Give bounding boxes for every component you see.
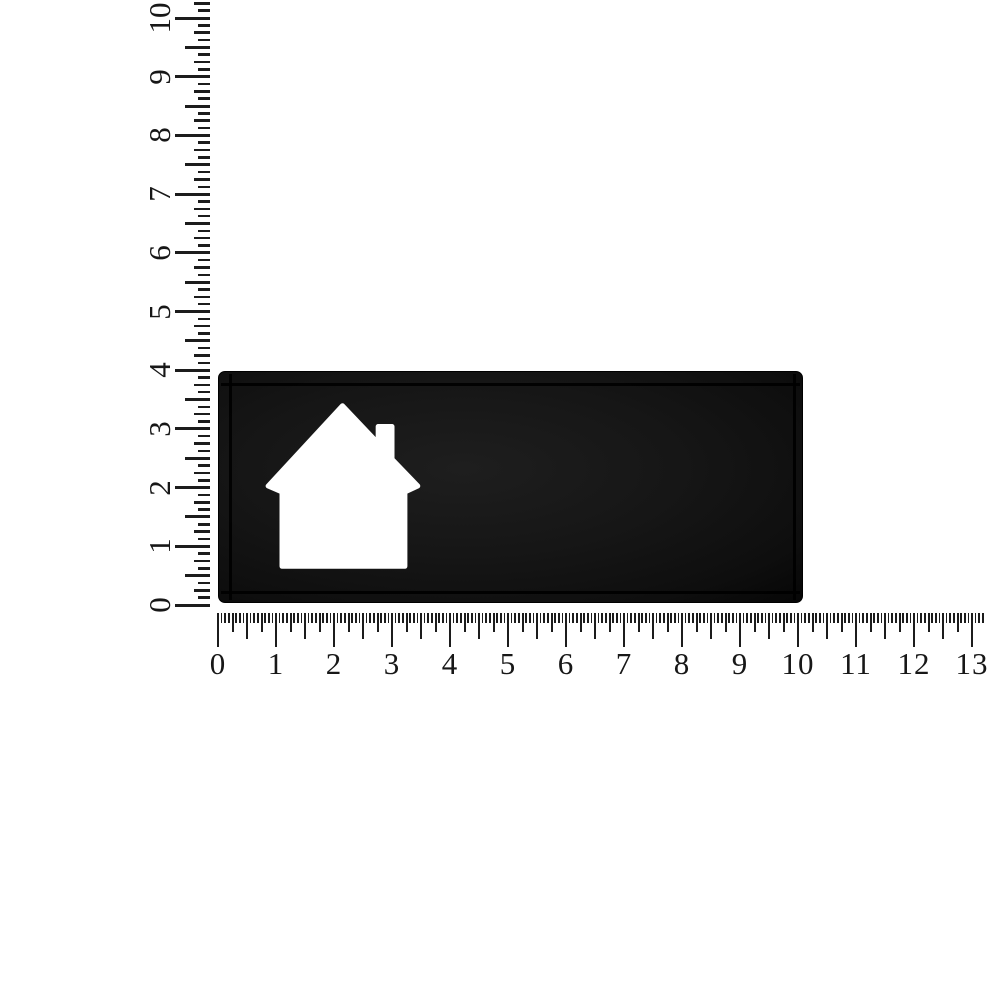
- v-ruler-tick: [194, 266, 210, 269]
- house-cutout-shape: [268, 406, 418, 567]
- h-ruler-tick: [543, 613, 545, 623]
- v-ruler-tick: [185, 105, 210, 108]
- v-ruler-tick: [198, 53, 210, 56]
- h-ruler-tick: [467, 613, 469, 623]
- v-ruler-tick: [198, 538, 210, 541]
- h-ruler-tick: [442, 613, 444, 623]
- h-ruler-tick: [337, 613, 339, 623]
- h-ruler-tick: [311, 613, 313, 623]
- v-ruler-tick: [175, 17, 210, 20]
- v-ruler-tick: [198, 230, 210, 233]
- v-ruler-label: 6: [136, 230, 182, 276]
- h-ruler-tick: [598, 613, 600, 623]
- h-ruler-tick: [830, 613, 832, 623]
- h-ruler-tick: [837, 613, 839, 623]
- v-ruler-tick: [198, 156, 210, 159]
- h-ruler-tick: [866, 613, 868, 623]
- h-ruler-tick: [243, 613, 245, 623]
- h-ruler-tick: [511, 613, 513, 623]
- h-ruler-tick: [942, 613, 944, 639]
- h-ruler-tick: [529, 613, 531, 623]
- v-ruler-tick: [194, 90, 210, 93]
- h-ruler-tick: [518, 613, 520, 623]
- v-ruler-tick: [198, 288, 210, 291]
- h-ruler-label: 6: [531, 648, 601, 679]
- v-ruler-tick: [185, 398, 210, 401]
- v-ruler-tick: [198, 200, 210, 203]
- h-ruler-tick: [344, 613, 346, 623]
- v-ruler-label: 10: [136, 0, 182, 41]
- h-ruler-tick: [768, 613, 770, 639]
- h-ruler-tick: [326, 613, 328, 623]
- h-ruler-tick: [913, 613, 916, 647]
- h-ruler-tick: [460, 613, 462, 623]
- h-ruler-tick: [623, 613, 626, 647]
- h-ruler-tick: [779, 613, 781, 623]
- v-ruler-tick: [194, 472, 210, 475]
- v-ruler-tick: [185, 163, 210, 166]
- h-ruler-tick: [319, 613, 321, 632]
- h-ruler-tick: [253, 613, 255, 623]
- h-ruler-tick: [964, 613, 966, 623]
- h-ruler-tick: [395, 613, 397, 623]
- h-ruler-tick: [939, 613, 941, 623]
- h-ruler-tick: [286, 613, 288, 623]
- v-ruler-tick: [198, 141, 210, 144]
- h-ruler-tick: [380, 613, 382, 623]
- h-ruler-tick: [446, 613, 448, 623]
- v-ruler-tick: [198, 450, 210, 453]
- h-ruler-tick: [609, 613, 611, 632]
- h-ruler-tick: [714, 613, 716, 623]
- h-ruler-label: 10: [763, 648, 833, 679]
- v-ruler-tick: [175, 134, 210, 137]
- h-ruler-tick: [580, 613, 582, 632]
- h-ruler-tick: [504, 613, 506, 623]
- h-ruler-tick: [333, 613, 336, 647]
- h-ruler-tick: [587, 613, 589, 623]
- v-ruler-tick: [198, 376, 210, 379]
- h-ruler-label: 9: [705, 648, 775, 679]
- h-ruler-tick: [406, 613, 408, 632]
- h-ruler-tick: [322, 613, 324, 623]
- h-ruler-tick: [359, 613, 361, 623]
- h-ruler-tick: [652, 613, 654, 639]
- h-ruler-tick: [703, 613, 705, 623]
- v-ruler-tick: [198, 97, 210, 100]
- v-ruler-tick: [198, 274, 210, 277]
- h-ruler-tick: [438, 613, 440, 623]
- h-ruler-tick: [409, 613, 411, 623]
- h-ruler-tick: [449, 613, 452, 647]
- h-ruler-tick: [641, 613, 643, 623]
- v-ruler-tick: [198, 127, 210, 130]
- h-ruler-tick: [674, 613, 676, 623]
- v-ruler-tick: [198, 112, 210, 115]
- h-ruler-tick: [384, 613, 386, 623]
- h-ruler-tick: [435, 613, 437, 632]
- v-ruler-tick: [175, 427, 210, 430]
- v-ruler-tick: [185, 222, 210, 225]
- h-ruler-tick: [554, 613, 556, 623]
- h-ruler-tick: [221, 613, 223, 623]
- v-ruler-tick: [194, 413, 210, 416]
- h-ruler-label: 12: [879, 648, 949, 679]
- h-ruler-tick: [547, 613, 549, 623]
- h-ruler-tick: [391, 613, 394, 647]
- v-ruler-tick: [194, 354, 210, 357]
- h-ruler-tick: [456, 613, 458, 623]
- h-ruler-tick: [634, 613, 636, 623]
- h-ruler-tick: [971, 613, 974, 647]
- h-ruler-tick: [739, 613, 742, 647]
- h-ruler-tick: [855, 613, 858, 647]
- h-ruler-tick: [330, 613, 332, 623]
- h-ruler-tick: [920, 613, 922, 623]
- h-ruler-tick: [848, 613, 850, 623]
- h-ruler-tick: [315, 613, 317, 623]
- v-ruler-tick: [198, 420, 210, 423]
- h-ruler-tick: [562, 613, 564, 623]
- h-ruler-tick: [464, 613, 466, 632]
- h-ruler-tick: [583, 613, 585, 623]
- h-ruler-tick: [246, 613, 248, 639]
- h-ruler-tick: [507, 613, 510, 647]
- h-ruler-tick: [645, 613, 647, 623]
- h-ruler-tick: [272, 613, 274, 623]
- h-ruler-tick: [576, 613, 578, 623]
- h-ruler-tick: [895, 613, 897, 623]
- h-ruler-tick: [707, 613, 709, 623]
- h-ruler-tick: [685, 613, 687, 623]
- h-ruler-tick: [775, 613, 777, 623]
- h-ruler-tick: [721, 613, 723, 623]
- h-ruler-tick: [424, 613, 426, 623]
- h-ruler-label: 2: [299, 648, 369, 679]
- h-ruler-tick: [605, 613, 607, 623]
- v-ruler-tick: [185, 339, 210, 342]
- h-ruler-tick: [844, 613, 846, 623]
- h-ruler-tick: [862, 613, 864, 623]
- h-ruler-tick: [297, 613, 299, 623]
- v-ruler-tick: [198, 318, 210, 321]
- h-ruler-tick: [681, 613, 684, 647]
- v-ruler-tick: [194, 530, 210, 533]
- h-ruler-tick: [612, 613, 614, 623]
- v-ruler-tick: [198, 494, 210, 497]
- h-ruler-tick: [957, 613, 959, 632]
- v-ruler-tick: [194, 560, 210, 563]
- h-ruler-tick: [975, 613, 977, 623]
- h-ruler-tick: [453, 613, 455, 623]
- v-ruler-tick: [198, 567, 210, 570]
- v-ruler-tick: [194, 208, 210, 211]
- v-ruler-tick: [198, 479, 210, 482]
- h-ruler-tick: [493, 613, 495, 632]
- h-ruler-tick: [351, 613, 353, 623]
- v-ruler-tick: [194, 589, 210, 592]
- h-ruler-tick: [917, 613, 919, 623]
- h-ruler-tick: [696, 613, 698, 632]
- v-ruler-tick: [198, 596, 210, 599]
- v-ruler-tick: [175, 75, 210, 78]
- v-ruler-tick: [198, 508, 210, 511]
- h-ruler-tick: [275, 613, 278, 647]
- h-ruler-tick: [420, 613, 422, 639]
- h-ruler-tick: [594, 613, 596, 639]
- h-ruler-tick: [413, 613, 415, 623]
- h-ruler-tick: [616, 613, 618, 623]
- h-ruler-tick: [522, 613, 524, 632]
- v-ruler-tick: [194, 442, 210, 445]
- v-ruler-tick: [198, 68, 210, 71]
- h-ruler-tick: [630, 613, 632, 623]
- v-ruler-label: 7: [136, 171, 182, 217]
- h-ruler-tick: [569, 613, 571, 623]
- h-ruler-tick: [261, 613, 263, 632]
- h-ruler-tick: [899, 613, 901, 632]
- h-ruler-tick: [859, 613, 861, 623]
- h-ruler-tick: [670, 613, 672, 623]
- h-ruler-tick: [402, 613, 404, 623]
- v-ruler-tick: [198, 347, 210, 350]
- h-ruler-tick: [362, 613, 364, 639]
- h-ruler-tick: [620, 613, 622, 623]
- h-ruler-tick: [224, 613, 226, 623]
- h-ruler-tick: [725, 613, 727, 632]
- h-ruler-tick: [293, 613, 295, 623]
- v-ruler-tick: [198, 406, 210, 409]
- h-ruler-tick: [823, 613, 825, 623]
- v-ruler-tick: [175, 251, 210, 254]
- v-ruler-tick: [198, 259, 210, 262]
- h-ruler-tick: [565, 613, 568, 647]
- v-ruler-label: 3: [136, 406, 182, 452]
- h-ruler-tick: [348, 613, 350, 632]
- v-ruler-tick: [198, 582, 210, 585]
- h-ruler-tick: [928, 613, 930, 632]
- v-ruler-tick: [185, 46, 210, 49]
- v-ruler-tick: [175, 369, 210, 372]
- h-ruler-tick: [304, 613, 306, 639]
- h-ruler-tick: [826, 613, 828, 639]
- v-ruler-label: 0: [136, 582, 182, 628]
- h-ruler-tick: [398, 613, 400, 623]
- h-ruler-tick: [786, 613, 788, 623]
- h-ruler-tick: [232, 613, 234, 632]
- h-ruler-tick: [627, 613, 629, 623]
- h-ruler-tick: [812, 613, 814, 632]
- v-ruler-label: 2: [136, 465, 182, 511]
- v-ruler-tick: [185, 515, 210, 518]
- h-ruler-tick: [888, 613, 890, 623]
- h-ruler-tick: [649, 613, 651, 623]
- h-ruler-tick: [746, 613, 748, 623]
- v-ruler-tick: [198, 244, 210, 247]
- h-ruler-tick: [750, 613, 752, 623]
- v-ruler-tick: [198, 39, 210, 42]
- h-ruler-tick: [710, 613, 712, 639]
- v-ruler-tick: [175, 310, 210, 313]
- v-ruler-tick: [194, 2, 210, 5]
- h-ruler-tick: [417, 613, 419, 623]
- h-ruler-tick: [489, 613, 491, 623]
- h-ruler-tick: [833, 613, 835, 623]
- h-ruler-tick: [308, 613, 310, 623]
- h-ruler-tick: [790, 613, 792, 623]
- h-ruler-tick: [931, 613, 933, 623]
- h-ruler-tick: [688, 613, 690, 623]
- h-ruler-tick: [290, 613, 292, 632]
- h-ruler-tick: [692, 613, 694, 623]
- h-ruler-tick: [656, 613, 658, 623]
- h-ruler-tick: [388, 613, 390, 623]
- h-ruler-tick: [873, 613, 875, 623]
- h-ruler-tick: [884, 613, 886, 639]
- h-ruler-tick: [728, 613, 730, 623]
- h-ruler-tick: [717, 613, 719, 623]
- h-ruler-tick: [514, 613, 516, 623]
- h-ruler-tick: [808, 613, 810, 623]
- h-ruler-tick: [794, 613, 796, 623]
- v-ruler-tick: [194, 61, 210, 64]
- h-ruler-tick: [355, 613, 357, 623]
- h-ruler-tick: [935, 613, 937, 623]
- h-ruler-tick: [431, 613, 433, 623]
- h-ruler-tick: [968, 613, 970, 623]
- h-ruler-tick: [257, 613, 259, 623]
- h-ruler-tick: [982, 613, 984, 623]
- h-ruler-tick: [699, 613, 701, 623]
- h-ruler-tick: [301, 613, 303, 623]
- h-ruler-tick: [217, 613, 220, 647]
- h-ruler-tick: [736, 613, 738, 623]
- v-ruler-tick: [198, 523, 210, 526]
- h-ruler-tick: [250, 613, 252, 623]
- h-ruler-label: 3: [357, 648, 427, 679]
- h-ruler-tick: [891, 613, 893, 623]
- v-ruler-tick: [175, 545, 210, 548]
- v-ruler-label: 9: [136, 54, 182, 100]
- v-ruler-tick: [194, 296, 210, 299]
- v-ruler-tick: [198, 552, 210, 555]
- h-ruler-tick: [340, 613, 342, 623]
- h-ruler-tick: [239, 613, 241, 623]
- product-dimension-image: 012345678910 012345678910111213: [0, 0, 1000, 1000]
- h-ruler-tick: [533, 613, 535, 623]
- h-ruler-tick: [801, 613, 803, 623]
- h-ruler-tick: [369, 613, 371, 623]
- h-ruler-tick: [525, 613, 527, 623]
- h-ruler-tick: [235, 613, 237, 623]
- h-ruler-tick: [754, 613, 756, 632]
- v-ruler-tick: [198, 435, 210, 438]
- v-ruler-tick: [194, 501, 210, 504]
- v-ruler-tick: [194, 31, 210, 34]
- v-ruler-tick: [194, 325, 210, 328]
- v-ruler-tick: [198, 9, 210, 12]
- h-ruler-label: 0: [183, 648, 253, 679]
- v-ruler-tick: [198, 332, 210, 335]
- h-ruler-tick: [946, 613, 948, 623]
- v-ruler-tick: [175, 604, 210, 607]
- h-ruler-tick: [783, 613, 785, 632]
- h-ruler-tick: [377, 613, 379, 632]
- v-ruler-tick: [194, 384, 210, 387]
- h-ruler-tick: [761, 613, 763, 623]
- house-cutout-icon: [219, 372, 802, 602]
- v-ruler-tick: [198, 303, 210, 306]
- h-ruler-tick: [841, 613, 843, 632]
- h-ruler-label: 4: [415, 648, 485, 679]
- h-ruler-tick: [953, 613, 955, 623]
- h-ruler-tick: [572, 613, 574, 623]
- v-ruler-tick: [194, 237, 210, 240]
- h-ruler-tick: [279, 613, 281, 623]
- v-ruler-tick: [185, 457, 210, 460]
- h-ruler-tick: [373, 613, 375, 623]
- h-ruler-tick: [819, 613, 821, 623]
- h-ruler-tick: [978, 613, 980, 623]
- h-ruler-tick: [667, 613, 669, 632]
- h-ruler-label: 11: [821, 648, 891, 679]
- h-ruler-tick: [757, 613, 759, 623]
- h-ruler-tick: [949, 613, 951, 623]
- h-ruler-tick: [659, 613, 661, 623]
- v-ruler-tick: [198, 362, 210, 365]
- h-ruler-tick: [881, 613, 883, 623]
- h-ruler-tick: [743, 613, 745, 623]
- v-ruler-tick: [194, 178, 210, 181]
- h-ruler-tick: [482, 613, 484, 623]
- v-ruler-tick: [175, 486, 210, 489]
- v-ruler-tick: [198, 83, 210, 86]
- address-plaque: [218, 371, 803, 603]
- v-ruler-tick: [185, 574, 210, 577]
- h-ruler-tick: [877, 613, 879, 623]
- h-ruler-tick: [815, 613, 817, 623]
- h-ruler-tick: [475, 613, 477, 623]
- h-ruler-tick: [924, 613, 926, 623]
- h-ruler-tick: [551, 613, 553, 632]
- h-ruler-tick: [732, 613, 734, 623]
- h-ruler-tick: [804, 613, 806, 623]
- v-ruler-tick: [175, 193, 210, 196]
- h-ruler-tick: [852, 613, 854, 623]
- h-ruler-tick: [663, 613, 665, 623]
- v-ruler-tick: [198, 391, 210, 394]
- h-ruler-tick: [678, 613, 680, 623]
- h-ruler-tick: [797, 613, 800, 647]
- h-ruler-label: 5: [473, 648, 543, 679]
- h-ruler-label: 7: [589, 648, 659, 679]
- h-ruler-tick: [540, 613, 542, 623]
- h-ruler-tick: [268, 613, 270, 623]
- h-ruler-tick: [478, 613, 480, 639]
- h-ruler-tick: [282, 613, 284, 623]
- v-ruler-label: 5: [136, 289, 182, 335]
- h-ruler-tick: [500, 613, 502, 623]
- h-ruler-tick: [638, 613, 640, 632]
- v-ruler-tick: [198, 186, 210, 189]
- h-ruler-label: 8: [647, 648, 717, 679]
- h-ruler-tick: [902, 613, 904, 623]
- h-ruler-tick: [591, 613, 593, 623]
- h-ruler-tick: [264, 613, 266, 623]
- h-ruler-tick: [366, 613, 368, 623]
- h-ruler-label: 1: [241, 648, 311, 679]
- v-ruler-tick: [194, 119, 210, 122]
